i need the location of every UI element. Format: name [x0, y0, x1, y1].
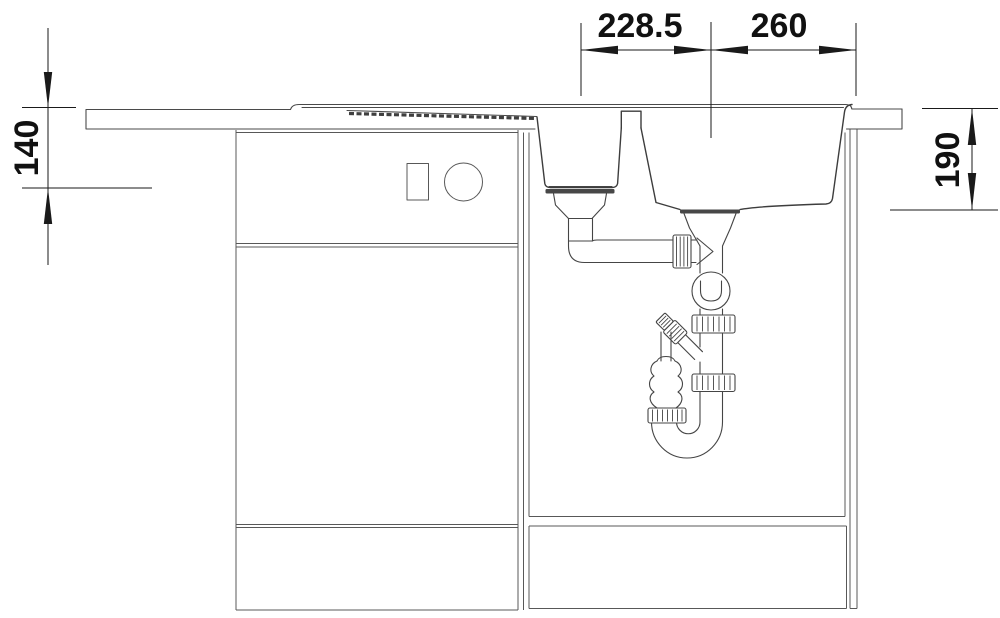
dimension-arrows [44, 46, 976, 224]
countertop-slab [86, 109, 902, 129]
arrow-up-icon [968, 109, 976, 146]
union-ring-outer [692, 272, 730, 310]
small-drain-flange [546, 189, 615, 194]
door-bottom-line [236, 525, 518, 528]
nut-body [673, 235, 691, 268]
sink-technical-drawing: 228.5 260 140 190 [0, 0, 1000, 618]
tee-junction-mark [697, 238, 713, 265]
small-bowl-elbow-pipe [569, 240, 674, 263]
dim-label-bowl-to-edge: 260 [751, 7, 808, 45]
u-bend [652, 422, 723, 458]
bottom-drawer-panel [529, 526, 847, 609]
countertop [86, 105, 902, 130]
cabinet-mid-divider [518, 130, 524, 610]
compression-nut-horizontal [673, 235, 691, 268]
small-drain-funnel [554, 194, 607, 219]
drawer-divider-line [236, 244, 518, 248]
pipe-stub [691, 240, 697, 263]
bowl-divider-saddle [621, 111, 641, 128]
riser-nut [648, 408, 686, 423]
large-drain-funnel [684, 214, 736, 247]
sink-bowls [537, 105, 852, 247]
arrow-down-icon [968, 173, 976, 210]
arrow-left-icon [581, 46, 618, 54]
union-ring-inner [701, 281, 722, 301]
large-bowl [641, 105, 852, 210]
drawing-canvas: 228.5 260 140 190 [0, 0, 1000, 618]
small-bowl [537, 117, 621, 188]
arrow-right-icon [674, 46, 711, 54]
large-drain-flange [680, 210, 740, 214]
cabinet [236, 129, 857, 610]
arrow-left-icon [711, 46, 748, 54]
cabinet-right-gable [850, 129, 857, 609]
socket-circle-symbol [445, 163, 483, 201]
nut-body [648, 408, 686, 423]
dim-label-bowl-spacing: 228.5 [597, 7, 682, 45]
arrow-up-icon [44, 188, 52, 224]
small-drain-coupling [569, 219, 593, 242]
riser-bell-outline [650, 357, 683, 409]
arrow-right-icon [819, 46, 856, 54]
socket-rectangle-symbol [407, 164, 429, 201]
compression-nut-lower [692, 374, 735, 392]
small-bowl-drain [546, 187, 615, 242]
union-ring [692, 272, 730, 310]
arrow-down-icon [44, 72, 52, 108]
dim-label-large-bowl-depth: 190 [929, 132, 967, 189]
compression-nut-upper [692, 315, 735, 333]
dim-label-small-bowl-depth: 140 [8, 120, 46, 177]
drain-trap-assembly [569, 235, 736, 458]
